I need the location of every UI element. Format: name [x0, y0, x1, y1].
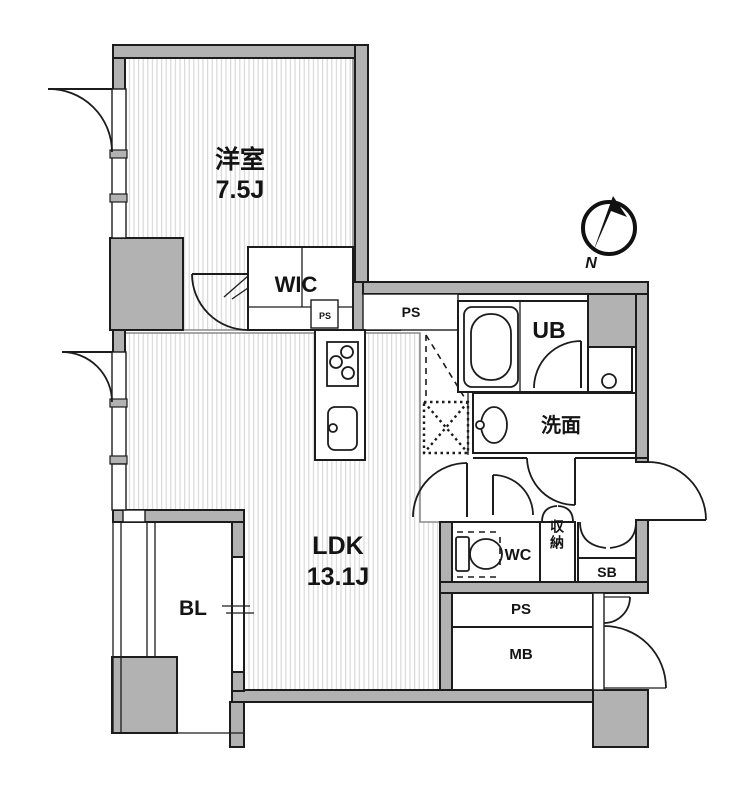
wall-balcony-right-upper	[232, 522, 244, 557]
window-mullion	[110, 456, 127, 464]
kitchen	[315, 330, 365, 460]
mb-door-arc	[604, 626, 666, 688]
wall-right-outer-lower	[636, 520, 648, 582]
sb-door-arc	[580, 522, 606, 548]
wall-left-bedroom-upper	[113, 58, 125, 91]
wc-label: WC	[505, 547, 532, 564]
sliding-window	[232, 557, 244, 672]
fridge-x-mark	[424, 402, 468, 453]
balcony-top-opening	[123, 510, 145, 522]
washroom-door-arc	[527, 458, 575, 505]
faucet-icon	[476, 421, 484, 429]
window-frame	[112, 89, 126, 238]
ps-door-arc	[604, 597, 630, 623]
ldk-window	[62, 352, 127, 510]
kitchen-faucet-icon	[329, 424, 337, 432]
wall-top-right-section	[363, 282, 648, 294]
ldk-size-label: 13.1J	[307, 563, 370, 591]
storage-label: 収納	[549, 518, 565, 551]
wic-ps-label: PS	[319, 311, 331, 321]
window-swing-arc	[62, 352, 112, 402]
bathtub-inner	[471, 314, 511, 380]
wall-stub-bottom	[230, 702, 244, 747]
floorplan-drawing: 洋室 7.5J WIC PS PS UB 洗面 LDK 13.1J BL WC …	[0, 0, 749, 800]
wall-balcony-right-lower	[232, 672, 244, 691]
window-mullion	[110, 194, 127, 202]
wall-right-outer-upper	[636, 294, 648, 462]
wall-block-left	[110, 238, 183, 330]
toilet-bowl-icon	[470, 539, 502, 569]
burner-icon	[342, 367, 354, 379]
bedroom-window	[48, 89, 127, 238]
washer-drain-icon	[602, 374, 616, 388]
wall-bottom-ldk	[232, 690, 600, 702]
bedroom-size-label: 7.5J	[216, 176, 265, 204]
compass-icon	[583, 196, 635, 254]
wall-left-closet	[440, 593, 452, 702]
entrance-door-arc	[648, 462, 706, 520]
sb-label: SB	[597, 564, 616, 580]
closet-face	[593, 593, 604, 690]
balcony-label: BL	[179, 597, 207, 620]
fridge-dotted-box	[424, 402, 468, 453]
wic-label: WIC	[275, 272, 318, 297]
unit-bath	[458, 301, 588, 392]
pillar-bottom-right	[593, 690, 648, 747]
wall-band-closet-top	[440, 582, 648, 593]
sb-door-arc	[610, 522, 636, 548]
ldk-name-label: LDK	[312, 532, 363, 560]
ps-mb-closet	[452, 593, 666, 690]
burner-icon	[341, 346, 353, 358]
wall-right-bedroom	[355, 45, 368, 294]
ps-upper-label: PS	[402, 304, 421, 320]
toilet-tank-icon	[456, 537, 469, 571]
floorplan-page: 洋室 7.5J WIC PS PS UB 洗面 LDK 13.1J BL WC …	[0, 0, 749, 800]
bedroom-name-label: 洋室	[215, 145, 265, 174]
wall-left-ldk-upper	[113, 330, 125, 353]
wall-top-bedroom	[113, 45, 368, 58]
wall-left-wc	[440, 522, 452, 582]
pillar-balcony	[112, 657, 177, 733]
wc-door-arc	[493, 475, 533, 515]
window-swing-arc	[48, 89, 112, 152]
fridge-x-mark	[424, 402, 468, 453]
washing-machine-area	[588, 347, 632, 392]
mb-label: MB	[509, 646, 532, 663]
burner-icon	[330, 356, 342, 368]
ub-label: UB	[532, 317, 565, 343]
window-frame	[112, 352, 126, 464]
ldk-door-arc	[413, 463, 467, 517]
ps-shaft-label: PS	[511, 601, 531, 618]
compass-n-label: N	[585, 255, 597, 272]
wall-washer-surround	[588, 294, 636, 347]
wall-thin-segment	[112, 464, 126, 510]
washroom-label: 洗面	[541, 414, 581, 437]
